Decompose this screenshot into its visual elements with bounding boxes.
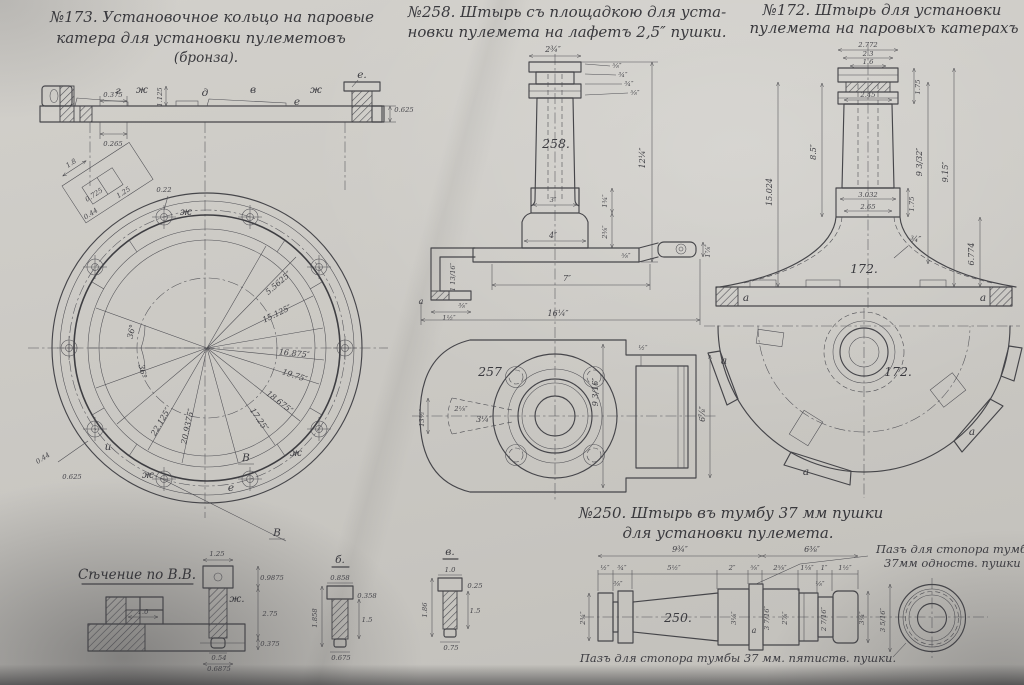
mark-letter: б.: [335, 554, 345, 566]
title-250-line1: №250. Штырь въ тумбу 37 мм пушки: [578, 504, 884, 522]
title-172-line2: пулемета на паровыхъ катерахъ: [749, 19, 1018, 37]
dim-label: 2.772: [857, 41, 877, 49]
dim-label: 3⅛″: [730, 611, 738, 625]
part-number-258: 258.: [541, 136, 570, 151]
dim-label: 0.75: [443, 644, 458, 652]
dim-label: 5½″: [667, 564, 681, 572]
dim-label: 3 5/16″: [879, 607, 887, 632]
drawing-sheet: №173. Установочное кольцо на паровые кат…: [0, 0, 1024, 685]
dim-label: 1.75: [908, 196, 916, 211]
dim-label: 0.375: [103, 91, 122, 99]
dim-label: 2.75: [261, 610, 277, 618]
key-pad: [756, 329, 784, 346]
mark-letter: а: [721, 355, 727, 367]
dim-label: ⅜″: [458, 302, 468, 310]
key-pad: [930, 373, 966, 408]
dim-label: 3¼″: [858, 611, 866, 625]
part-number-172: 172.: [850, 261, 878, 276]
dim-label: 3″: [550, 196, 557, 204]
angle-dim: 36°: [126, 324, 138, 340]
dim-label: 2.45: [859, 91, 875, 99]
dim-label: ¾″: [911, 235, 922, 244]
dim-label: 2″: [728, 564, 736, 572]
radial-dim: 16.875″: [278, 347, 310, 359]
title-250-line2: для установки пулемета.: [622, 524, 833, 542]
blueprint-paper: №173. Установочное кольцо на паровые кат…: [0, 0, 1024, 685]
dim-label: 3¼″: [476, 415, 492, 424]
dim-label: 0.44: [34, 451, 51, 466]
dim-label: 0.358: [357, 592, 377, 600]
dim-label: 0.54: [211, 654, 226, 662]
key-pad: [789, 410, 822, 445]
dim-label: 1.125: [156, 87, 164, 106]
dim-label: 2⅛″: [453, 405, 468, 413]
angle-dim: 36°: [137, 364, 149, 380]
dim-label: 1.25: [209, 550, 224, 558]
dim-label: 2¾″: [544, 45, 561, 54]
dim-label: 6.774: [967, 243, 976, 266]
mark-letter: ж: [180, 206, 192, 218]
plate-cavity: [636, 366, 688, 468]
dim-label: 1 13/16″: [449, 262, 457, 291]
dim-label: 0.858: [330, 574, 350, 582]
mark-letter: а: [969, 426, 975, 438]
dim-label: 0.22: [156, 186, 171, 194]
part-number-172-plan: 172.: [884, 364, 912, 379]
radial-dim: 18.675″: [265, 389, 295, 415]
pin-172-bottom-view: а а а 172.: [704, 308, 1022, 498]
dim-label: 9 3/16″: [591, 378, 600, 407]
dim-label: 1.6: [863, 58, 874, 66]
dim-label: 8.5″: [809, 144, 818, 160]
mark-letter: а: [743, 292, 749, 304]
mark-letter: а: [752, 626, 757, 635]
annotation: 37мм одноств. пушки: [884, 556, 1021, 570]
section-mark: В: [272, 527, 281, 539]
base-flange: [716, 287, 1012, 306]
dim-label: 15.024: [765, 178, 774, 206]
mark-letter: и: [105, 441, 112, 453]
mark-letter: ж.: [229, 593, 244, 605]
dim-label: ¾″: [618, 71, 628, 79]
dim-label: ⅜″: [613, 580, 623, 588]
dim-label: 0.6875: [207, 665, 231, 673]
radial-dim: 22.125″: [149, 406, 173, 438]
dim-label: 1¾″: [601, 194, 609, 208]
title-173-line2: катера для установки пулеметовъ: [56, 29, 345, 47]
title-173-line1: №173. Установочное кольцо на паровые: [49, 8, 374, 26]
radial-dim: 19.75″: [281, 367, 308, 384]
section-line-bb: [152, 474, 286, 541]
dim-label: 0.44: [82, 206, 99, 221]
dim-label: 2.65: [859, 203, 875, 211]
dim-label: ⅝″: [750, 564, 760, 572]
dim-label: ⅛″: [815, 580, 825, 588]
dim-label: 0.375: [260, 640, 279, 648]
dim-label: 2⅞″: [781, 611, 789, 626]
dim-label: 7″: [563, 274, 571, 283]
mark-letter: ж: [142, 469, 154, 481]
mark-letter: д: [202, 87, 209, 99]
dim-label: 1.0: [445, 566, 456, 574]
dim-label: 0.625: [394, 106, 413, 114]
annotation: Пазъ для стопора тумбы 37 мм. пятиств. п…: [579, 651, 896, 665]
part-number-250: 250.: [663, 610, 692, 625]
section-title: Сѣчение по В.В.: [78, 567, 196, 583]
dim-label: 2¾″: [579, 611, 587, 626]
dim-label: ⅝″: [630, 89, 640, 97]
dim-label: 2⅜″: [601, 225, 609, 240]
title-258-line2: новки пулемета на лафетъ 2,5″ пушки.: [408, 23, 727, 41]
ring-173-front-view: 5.5625″ 15.125″ 16.875″ 19.75″ 18.675″ 1…: [28, 122, 388, 541]
dim-label: ½″: [638, 344, 648, 352]
dim-label: 1.0: [138, 608, 149, 616]
radial-dim: 5.5625″: [264, 270, 293, 297]
bolt-b: б. 0.858 0.358 1.858 1.5 0.675: [311, 554, 377, 662]
dim-label: ⅝″: [612, 62, 622, 70]
ring-173-side-view: г ж д в е ж е. 0.375 0.265 1.125 0.625: [40, 69, 414, 190]
dim-label: 3 7/16″: [763, 605, 771, 630]
dim-label: 0.625: [62, 473, 81, 481]
section-mark: В: [241, 452, 250, 464]
annotation: Пазъ для стопора тумбы: [875, 542, 1024, 556]
dim-label: 1⅛″: [800, 564, 814, 572]
dim-label: 3.032: [858, 191, 877, 199]
ring-right-lug: [344, 82, 380, 91]
dim-label: ⅝″: [621, 252, 631, 260]
dim-label: 1.8: [64, 157, 78, 170]
dim-label: 13½″: [418, 409, 426, 427]
dim-label: 1.25: [115, 185, 132, 200]
dim-label: ¾″: [617, 564, 627, 572]
shaft-250-drawing: 250. а 2¾″ 3⅛″ 3 7/16″ 2⅞″ 2 7/16″ 3¼″ 9…: [579, 542, 1024, 665]
pin-172-elevation: а а 2.772 2.3 1.6 2.45 1.75 3.032 2.65 1…: [716, 41, 1016, 308]
dim-label: 0.25: [467, 582, 482, 590]
dim-label: 0.675: [331, 654, 350, 662]
plate-257-plan: 257 3¼″ 2⅛″ 13½″ 9 3/16″ 6⅞″ ½″: [412, 340, 716, 492]
dim-label: 9¾″: [672, 545, 688, 554]
shaft-250-end-view: 3 5/16″: [879, 578, 966, 658]
dim-label: 1.5: [470, 607, 481, 615]
dim-label: 1.86: [421, 602, 429, 618]
mark-letter: ж: [290, 447, 302, 459]
section-bb-group: Сѣчение по В.В. 1.0 1.25 ж. 0.9875 2.75 …: [78, 546, 483, 673]
mark-letter: е: [294, 96, 300, 108]
dim-label: ¾″: [624, 80, 634, 88]
rim-pad: [784, 452, 851, 485]
mark-letter: а: [980, 292, 986, 304]
mount-plate: [473, 248, 639, 262]
bolt-v: в. 1.0 0.25 1.86 1.5 0.75: [421, 546, 483, 652]
dim-label: 12¼″: [638, 148, 647, 169]
dim-label: 1″: [821, 564, 828, 572]
dim-label: 0.265: [103, 140, 122, 148]
mark-letter: в: [250, 84, 256, 96]
rim-pad: [1001, 346, 1022, 381]
title-172-line1: №172. Штырь для установки: [762, 1, 1002, 19]
mark-letter: ж: [310, 84, 322, 96]
right-lug: [658, 242, 696, 257]
dim-label: 4″: [548, 231, 557, 240]
dim-label: 9 3/32″: [915, 148, 924, 177]
dim-label: 1½″: [442, 314, 456, 322]
title-258-line1: №258. Штырь съ площадкою для уста-: [407, 3, 726, 21]
dim-label: 1.75: [914, 79, 922, 94]
title-173-line3: (бронза).: [174, 50, 238, 66]
mark-letter-e: е.: [357, 69, 367, 81]
dim-label: 2 7/16″: [820, 606, 828, 632]
dim-label: 1⅞″: [704, 244, 712, 258]
mark-letter: ж: [136, 84, 148, 96]
radial-dim: 15.125″: [261, 303, 293, 325]
mark-letter: е: [228, 482, 234, 494]
dim-label: 2.3: [862, 50, 874, 58]
dim-label: 1½″: [838, 564, 852, 572]
dim-label: 1.5: [362, 616, 373, 624]
dim-label: 9.15″: [941, 162, 950, 183]
dim-label: 1.858: [311, 608, 319, 628]
mark-letter: в.: [445, 546, 454, 558]
dim-label: 16¼″: [548, 309, 569, 318]
dim-label: ½″: [600, 564, 610, 572]
bolt-zh: 1.25 ж. 0.9875 2.75 0.375 0.54 0.6875: [203, 550, 284, 673]
radial-dim: 20.9375″: [179, 408, 196, 446]
part-number-257: 257: [477, 364, 502, 379]
dim-label: 0.725: [84, 186, 105, 203]
rim-pad: [954, 399, 1003, 452]
radial-dim: 17.25″: [248, 406, 270, 432]
dim-label: 6⅜″: [804, 545, 820, 554]
dim-label: 6⅞″: [698, 406, 707, 422]
dim-label: 0.9875: [260, 574, 284, 582]
mark-letter: а: [803, 466, 809, 478]
